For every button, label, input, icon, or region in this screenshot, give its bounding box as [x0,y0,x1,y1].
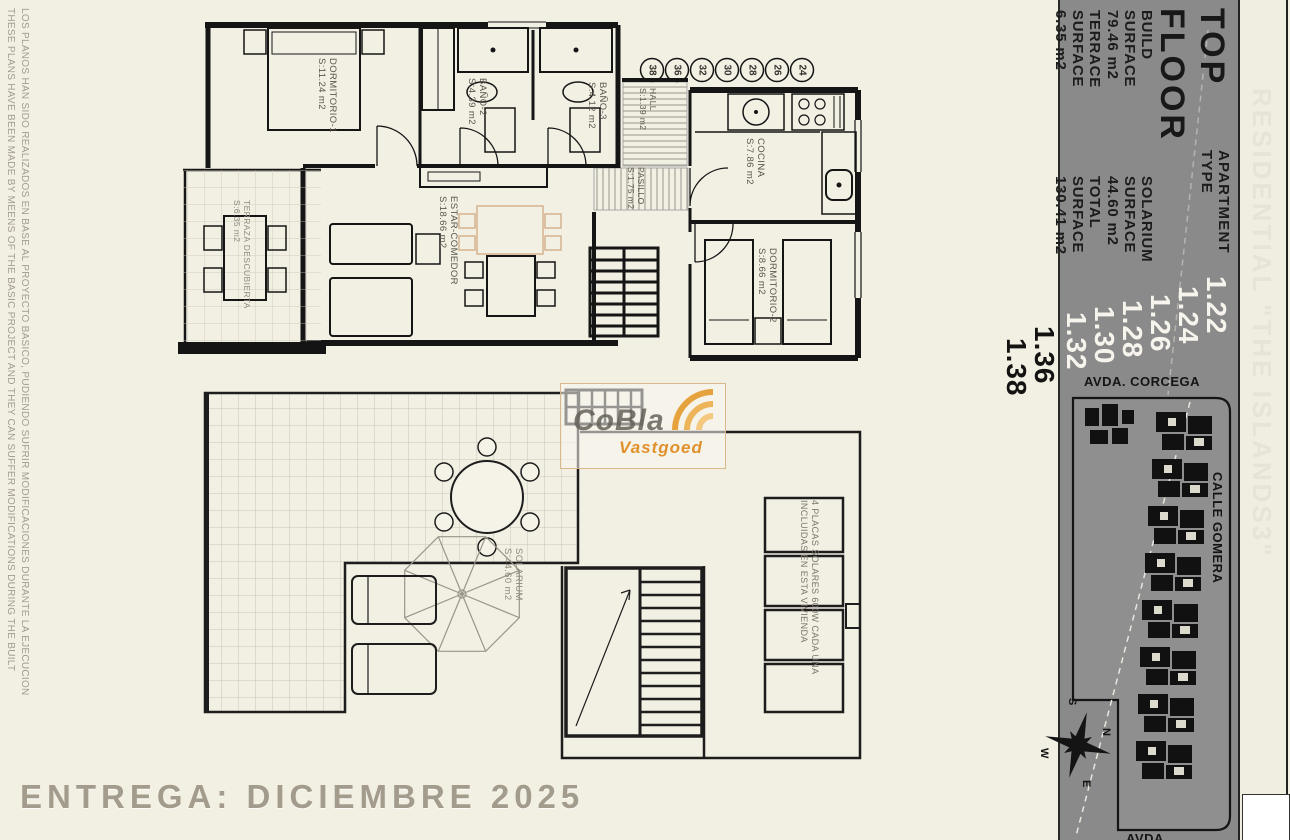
unit-circle-label: 28 [747,64,758,76]
surface-total: TOTAL SURFACE 130.41 m2 [1052,176,1103,255]
disclaimer-text: THESE PLANS HAVE BEEN MADE BY MEENS OF T… [3,8,31,768]
room-label-pasillo: PASILLO S:1.75 m2 [626,167,646,209]
watermark-brand-sub: Vastgoed [619,438,703,458]
unit-circle-label: 38 [647,64,658,76]
compass-e: E [1080,780,1092,787]
solar-panels-note: 4 PLACAS SOLARES 600W CADA UNA INCLUIDAS… [798,500,820,675]
room-label-dormitorio2: DORMITORIO-2 S:8.66 m2 [756,248,778,323]
room-label-terraza: TERRAZA DESCUBIERTA S:6.35 m2 [232,200,252,309]
room-label-solarium: SOLARIUM S:44.60 m2 [502,548,524,601]
unit-circle-label: 30 [722,64,733,76]
compass-n: N [1100,728,1112,736]
panel-floor-title: TOP FLOOR [1152,8,1232,142]
watermark-brand: CoBla [573,404,665,438]
street-label-right: CALLE GOMERA [1210,472,1225,583]
apartment-number: 1.24 [1172,286,1204,345]
room-label-bano2: BAÑO-2 S:4.39 m2 [466,78,488,125]
delivery-date-text: ENTREGA: DICIEMBRE 2025 [20,778,584,816]
room-label-bano3: BAÑO-3 S:4.12 m2 [586,82,608,129]
unit-circle-label: 32 [697,64,708,76]
surface-build: BUILD SURFACE 79.46 m2 [1104,10,1155,87]
disclaimer-en: THESE PLANS HAVE BEEN MADE BY MEENS OF T… [3,8,17,768]
disclaimer-es: LOS PLANOS HAN SIDO REALIZADOS EN BASE A… [17,8,31,768]
compass-w: W [1038,748,1050,758]
solarium-plan [205,390,860,758]
apartment-number: 1.36 [1028,326,1060,385]
room-label-hall: HALL S:1.39 m2 [638,88,658,130]
residential-title: RESIDENTIAL "THE ISLANDS3" [1246,88,1277,559]
panel-apartment-type-label: APARTMENT TYPE [1198,150,1232,254]
apartment-number: 1.22 [1200,276,1232,335]
apartment-number: 1.32 [1060,312,1092,371]
unit-circle-label: 24 [797,64,808,76]
compass-s: S [1066,698,1078,705]
watermark: CoBla Vastgoed [560,383,726,469]
apartment-number: 1.30 [1088,306,1120,365]
apartment-number: 1.26 [1144,294,1176,353]
unit-circle-label: 26 [772,64,783,76]
unit-circle-label: 36 [672,64,683,76]
title-block-box [1242,794,1290,840]
street-label-top: AVDA. CORCEGA [1084,374,1200,389]
compass-icon [1045,712,1111,778]
surface-solarium: SOLARIUM SURFACE 44.60 m2 [1104,176,1155,262]
room-label-cocina: COCINA S:7.86 m2 [744,138,766,185]
watermark-logo-icon [669,386,719,434]
surface-terrace: TERRACE SURFACE 6.35 m2 [1052,10,1103,88]
room-label-estar-comedor: ESTAR-COMEDOR S:18.66 m2 [437,196,459,285]
street-label-bottom: AVDA. [1126,831,1168,840]
apartment-number: 1.28 [1116,300,1148,359]
room-label-dormitorio1: DORMITORIO-1 S:11.24 m2 [316,58,338,133]
floor-plan-sheet: 38 36 32 30 28 26 24 [0,0,1290,840]
apartment-number: 1.38 [1000,338,1032,397]
